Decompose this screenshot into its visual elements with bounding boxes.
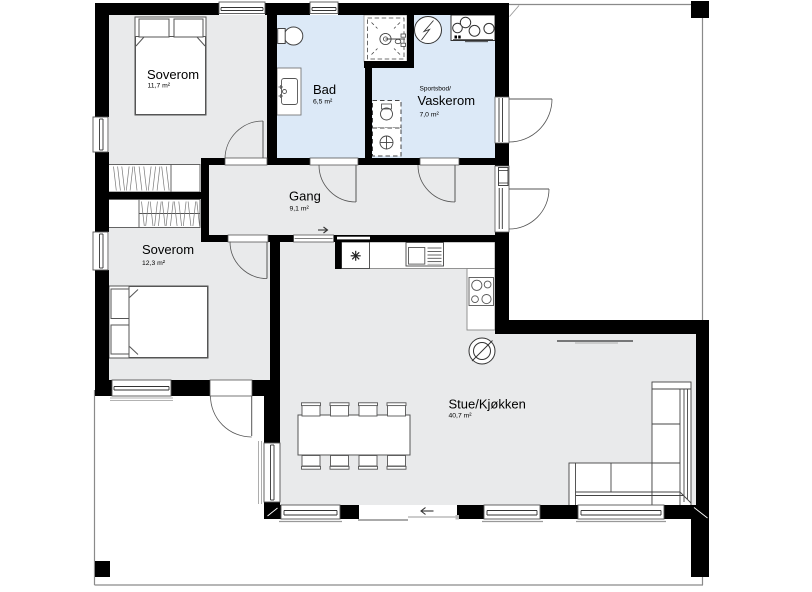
svg-text:Gang: Gang: [289, 189, 321, 204]
svg-text:40,7 m²: 40,7 m²: [449, 412, 473, 419]
svg-text:Vaskerom: Vaskerom: [418, 93, 476, 108]
svg-text:Soverom: Soverom: [142, 242, 194, 257]
svg-text:Stue/Kjøkken: Stue/Kjøkken: [449, 397, 526, 412]
svg-text:11,7 m²: 11,7 m²: [148, 83, 171, 90]
svg-text:Soverom: Soverom: [147, 67, 199, 82]
svg-text:Bad: Bad: [313, 82, 336, 97]
svg-text:6,5 m²: 6,5 m²: [313, 99, 333, 106]
svg-text:Sportsbod/: Sportsbod/: [420, 86, 452, 93]
svg-text:9,1 m²: 9,1 m²: [290, 206, 310, 213]
svg-text:12,3 m²: 12,3 m²: [142, 260, 166, 267]
svg-text:7,0 m²: 7,0 m²: [420, 112, 440, 119]
